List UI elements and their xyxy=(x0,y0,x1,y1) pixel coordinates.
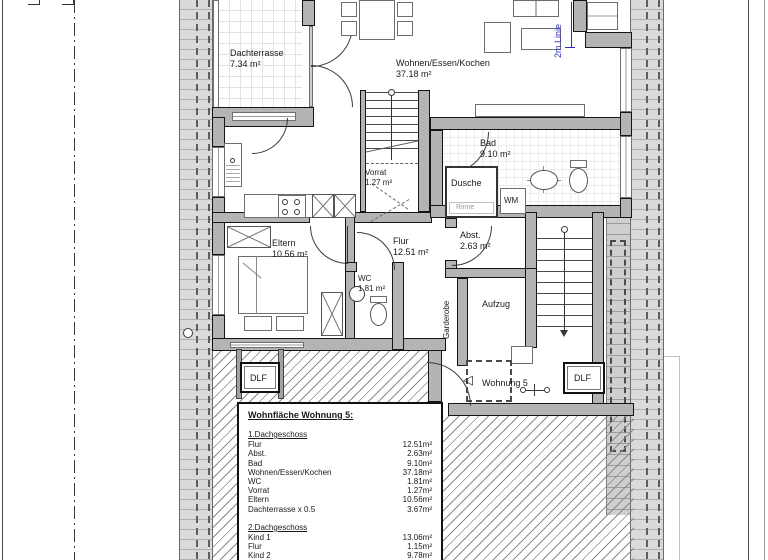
elevator-east-wall xyxy=(525,268,537,348)
stairwell-down-arrow xyxy=(560,330,568,337)
stair-wall-east xyxy=(418,90,430,212)
area-table-row: WC1.81m² xyxy=(248,477,432,486)
entry-arrow-icon: ◁ xyxy=(463,372,473,388)
roof-band-dash xyxy=(196,0,198,560)
door-closer-dot xyxy=(520,387,526,393)
kitchen-faucet xyxy=(230,158,235,163)
roof-band-dash xyxy=(658,0,660,560)
upper-stair-centerline xyxy=(391,92,392,160)
wc-toilet-bowl xyxy=(370,303,387,326)
vorrat-boundary-dash xyxy=(366,163,418,164)
toilet-bowl xyxy=(569,168,588,193)
dlf-roof-window-left: DLF xyxy=(240,362,280,393)
kitchen-door-arc xyxy=(252,118,288,154)
bed-pillow-line xyxy=(256,256,257,314)
bath-sink xyxy=(530,170,558,190)
north-wall-block xyxy=(573,0,587,32)
wc-toilet-tank xyxy=(370,296,387,303)
dining-table xyxy=(359,0,395,40)
eltern-north-wall xyxy=(348,212,432,223)
dlf-roof-window-right: DLF xyxy=(563,362,605,394)
floor-plan: Dusche Rinne WM DLF DLF ◁ Wohnung 5 Dach… xyxy=(0,0,768,560)
roof-vent-circle xyxy=(183,328,193,338)
terrace-door-arc xyxy=(311,65,353,107)
room-label-wohnen: Wohnen/Essen/Kochen37.18 m² xyxy=(396,58,490,81)
toilet-tank xyxy=(570,160,587,168)
wardrobe xyxy=(227,226,271,248)
area-table-row: Eltern10.56m² xyxy=(248,495,432,504)
eltern-door-leaf xyxy=(347,226,348,264)
area-table-row: Kind 29.78m² xyxy=(248,551,432,560)
wc-door-arc xyxy=(357,232,395,270)
area-table-row: Kind 113.06m² xyxy=(248,533,432,542)
room-label-aufzug: Aufzug xyxy=(468,299,524,310)
room-label-bad: Bad9.10 m² xyxy=(480,138,511,161)
roof-band-dash xyxy=(208,0,210,560)
eltern-south-window xyxy=(230,342,304,348)
sheet-border-right-inner xyxy=(748,0,749,560)
stove-burner xyxy=(282,209,288,215)
nightstand xyxy=(276,316,304,331)
dining-chair xyxy=(341,21,357,36)
corner-mark xyxy=(28,0,40,5)
corner-wall-block xyxy=(585,32,632,48)
wardrobe xyxy=(321,292,343,336)
kitchen-cabinet xyxy=(334,194,356,218)
nightstand xyxy=(244,316,272,331)
door-closer-dot xyxy=(544,387,550,393)
terrace-balustrade xyxy=(213,0,219,108)
area-table-row: Flur12.51m² xyxy=(248,440,432,449)
faint-roof-line xyxy=(679,356,680,560)
stairwell-start-dot xyxy=(561,226,568,233)
shower-label: Dusche xyxy=(451,178,482,189)
elevator-door-frame xyxy=(511,346,533,364)
area-table-row: Vorrat1.27m² xyxy=(248,486,432,495)
sheet-border-right-outer xyxy=(764,0,765,560)
west-wall xyxy=(212,197,225,255)
area-table-row: Wohnen/Essen/Kochen37.18m² xyxy=(248,468,432,477)
room-label-abst: Abst.2.63 m² xyxy=(460,230,491,253)
abst-east-wall xyxy=(525,212,537,270)
stove xyxy=(278,195,306,218)
sheet-border-left xyxy=(2,0,3,560)
eltern-door-arc xyxy=(310,226,348,264)
bed xyxy=(238,256,308,314)
dlf-label: DLF xyxy=(250,373,267,384)
shower-drain-label: Rinne xyxy=(456,204,474,213)
area-table: Wohnfläche Wohnung 5: 1.DachgeschossFlur… xyxy=(237,402,443,560)
abst-south-wall xyxy=(445,268,537,278)
dlf-label: DLF xyxy=(574,373,591,384)
dining-chair xyxy=(397,2,413,17)
east-window xyxy=(620,48,632,112)
living-bath-wall xyxy=(430,117,632,130)
kitchen-cabinet xyxy=(312,194,334,218)
stove-burner xyxy=(294,209,300,215)
dining-chair xyxy=(397,21,413,36)
area-table-row: Bad9.10m² xyxy=(248,459,432,468)
kitchen-drainer xyxy=(226,165,240,184)
door-closer-tick xyxy=(534,384,535,396)
area-table-row: Dachterrasse x 0.53.67m² xyxy=(248,505,432,514)
area-table-section-header: 1.Dachgeschoss xyxy=(248,430,432,439)
roof-hatch-right xyxy=(430,416,634,560)
north-wall-block xyxy=(302,0,315,26)
room-label-eltern: Eltern10.56 m² xyxy=(272,238,308,261)
sideboard xyxy=(475,104,585,117)
armchair xyxy=(484,22,511,53)
area-table-row: Abst.2.63m² xyxy=(248,449,432,458)
washing-machine-label: WM xyxy=(504,196,518,206)
door-closer-line xyxy=(524,390,546,391)
area-table-row: Flur1.15m² xyxy=(248,542,432,551)
stove-burner xyxy=(282,199,288,205)
upper-stair-start-dot xyxy=(388,89,395,96)
corridor-south-wall xyxy=(448,403,634,416)
eltern-window xyxy=(212,255,225,315)
east-wall-block xyxy=(620,198,632,218)
two-m-line-tick xyxy=(565,47,575,48)
area-table-title: Wohnfläche Wohnung 5: xyxy=(248,410,432,421)
room-label-vorrat: Vorrat1.27 m² xyxy=(365,168,392,188)
north-window xyxy=(587,2,618,30)
room-label-wc: WC1.81 m² xyxy=(358,274,385,294)
faint-roof-line xyxy=(664,356,680,357)
east-wall-block xyxy=(620,112,632,136)
room-label-dachterrasse: Dachterrasse7.34 m² xyxy=(230,48,284,71)
room-label-flur: Flur12.51 m² xyxy=(393,236,429,259)
garderobe-wall xyxy=(457,278,468,366)
area-table-body: 1.DachgeschossFlur12.51m²Abst.2.63m²Bad9… xyxy=(248,430,432,560)
roof-band-dash xyxy=(646,0,648,560)
stairwell-centerline xyxy=(564,230,565,334)
two-m-line-mark xyxy=(571,2,572,48)
property-line xyxy=(74,0,75,560)
room-label-garderobe: Garderobe xyxy=(442,277,452,339)
dining-chair xyxy=(341,2,357,17)
stove-burner xyxy=(294,199,300,205)
east-window xyxy=(620,136,632,198)
corner-mark xyxy=(62,0,74,5)
two-m-line-label: 2m Linie xyxy=(553,4,564,58)
wc-east-wall xyxy=(392,262,404,350)
area-table-section-header: 2.Dachgeschoss xyxy=(248,523,432,532)
